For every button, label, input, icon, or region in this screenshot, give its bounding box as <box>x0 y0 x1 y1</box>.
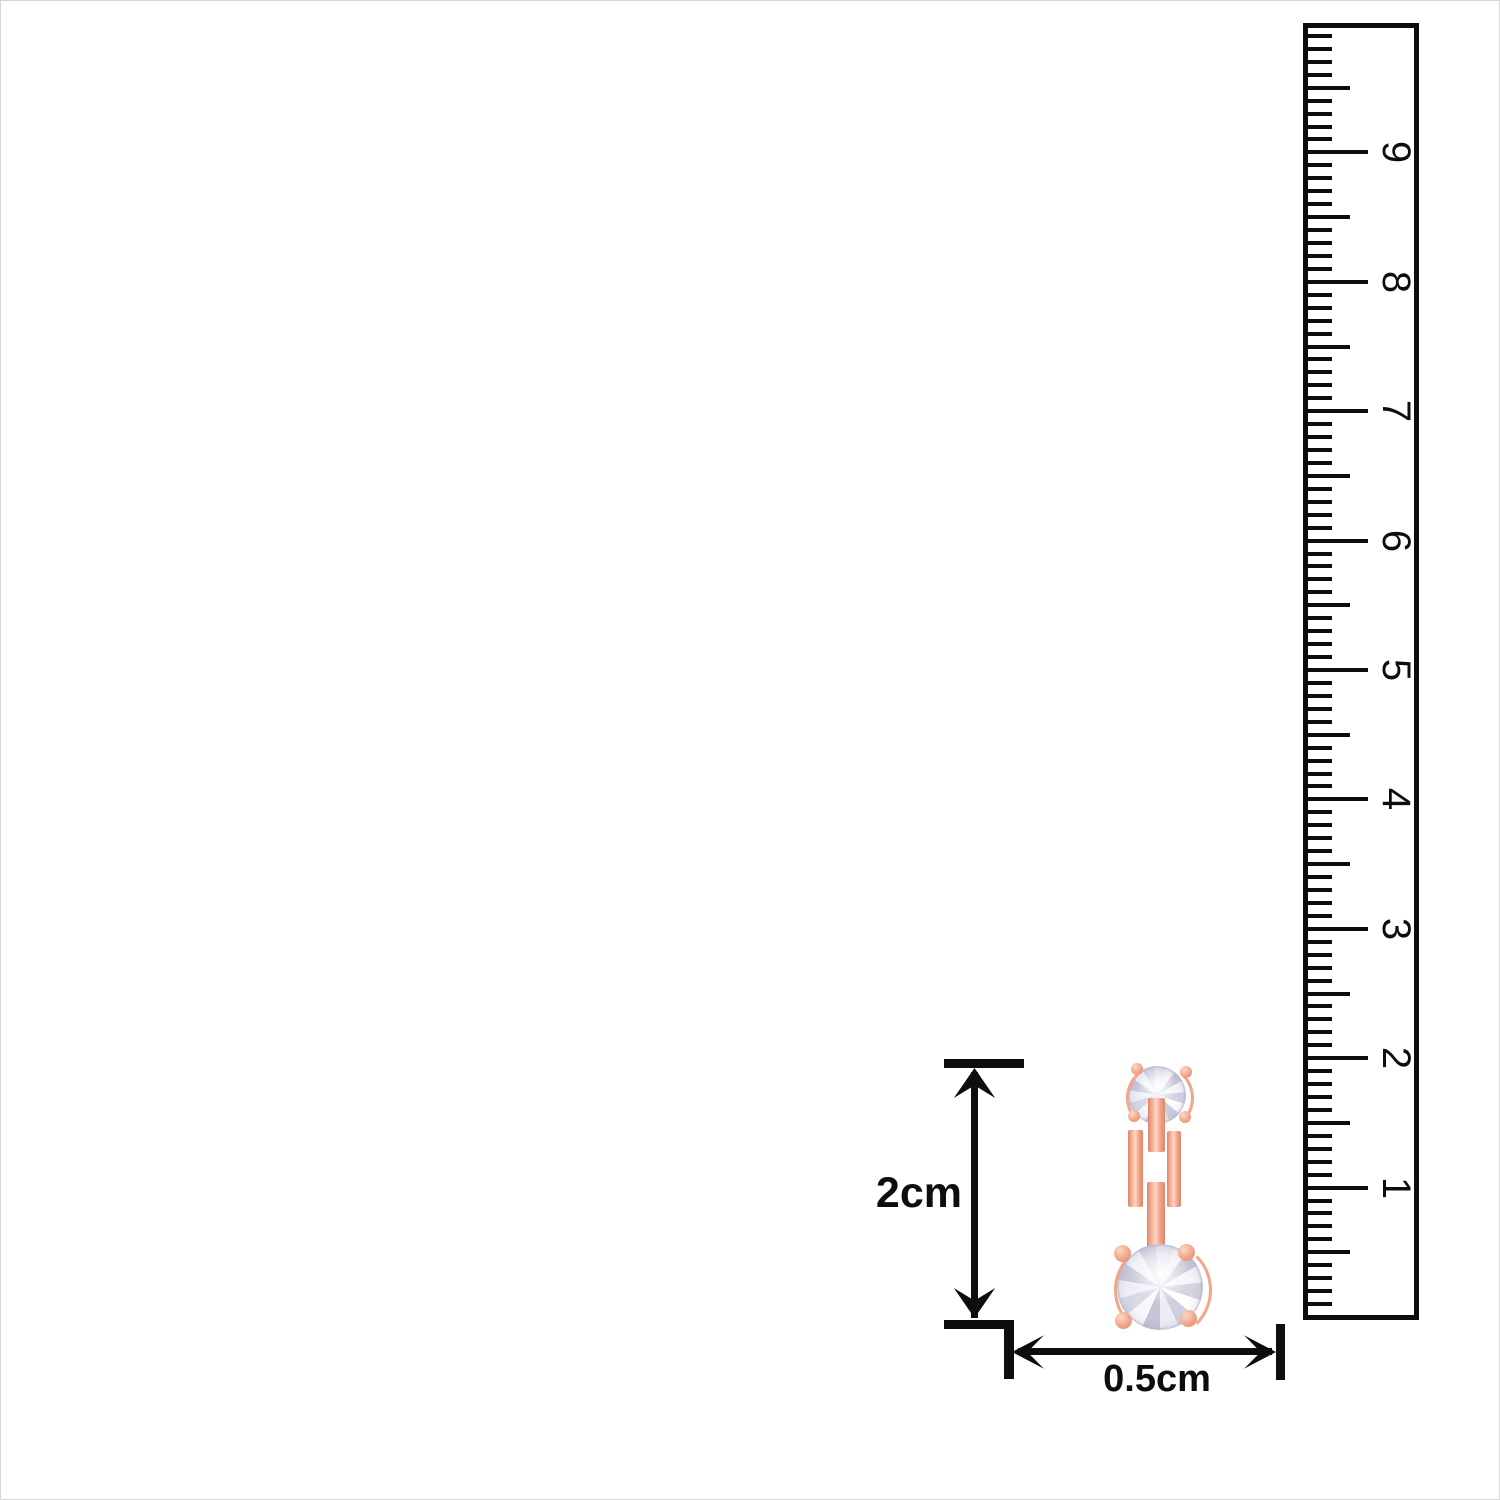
ruler-tick <box>1308 862 1350 866</box>
ruler-tick <box>1308 966 1332 970</box>
ruler-tick <box>1308 668 1368 672</box>
ruler-number: 6 <box>1376 529 1416 551</box>
ruler-tick <box>1308 577 1332 581</box>
ruler-tick <box>1308 810 1332 814</box>
ruler-tick <box>1308 1121 1350 1125</box>
prong-ball <box>1114 1245 1131 1262</box>
ruler-tick <box>1308 409 1368 413</box>
ruler-tick <box>1308 914 1332 918</box>
ruler-tick <box>1308 784 1332 788</box>
ruler-tick <box>1308 552 1332 556</box>
ruler-tick <box>1308 733 1350 737</box>
ruler-number: 9 <box>1376 141 1416 163</box>
ruler-tick <box>1308 448 1332 452</box>
prong-ball <box>1131 1063 1143 1075</box>
ruler-tick <box>1308 1043 1332 1047</box>
ruler-tick <box>1308 435 1332 439</box>
ruler-tick <box>1308 564 1332 568</box>
ruler-tick <box>1308 849 1332 853</box>
prong-ball <box>1178 1244 1195 1261</box>
ruler-tick <box>1308 150 1368 154</box>
ruler-tick <box>1308 720 1332 724</box>
ruler-number: 5 <box>1376 659 1416 681</box>
ruler-tick <box>1308 694 1332 698</box>
ruler-tick <box>1308 759 1332 763</box>
prong-ball <box>1180 1310 1197 1327</box>
ruler-tick <box>1308 357 1332 361</box>
width-dimension-line <box>1018 1348 1272 1355</box>
ruler-tick <box>1308 1095 1332 1099</box>
ruler-tick <box>1308 526 1332 530</box>
ruler-tick <box>1308 797 1368 801</box>
ruler-tick <box>1308 47 1332 51</box>
ruler-tick <box>1308 1082 1332 1086</box>
prong-ball <box>1179 1111 1191 1123</box>
ruler-tick <box>1308 707 1332 711</box>
ruler-tick <box>1308 396 1332 400</box>
ruler-tick <box>1308 772 1332 776</box>
ruler-tick <box>1308 215 1350 219</box>
ruler-tick <box>1308 1250 1350 1254</box>
ruler-tick <box>1308 642 1332 646</box>
ruler-tick <box>1308 293 1332 297</box>
product-size-diagram: 123456789 2cm <box>0 0 1500 1500</box>
ruler-tick <box>1308 1004 1332 1008</box>
ruler-tick <box>1308 1199 1332 1203</box>
ruler-number: 1 <box>1376 1176 1416 1198</box>
ruler-tick <box>1308 137 1332 141</box>
ruler-tick <box>1308 370 1332 374</box>
ruler-tick <box>1308 228 1332 232</box>
ruler-tick <box>1308 254 1332 258</box>
ruler-tick <box>1308 1276 1332 1280</box>
ruler-tick <box>1308 979 1332 983</box>
ruler-tick <box>1308 681 1332 685</box>
prong-ball <box>1180 1066 1192 1078</box>
ruler-tick <box>1308 202 1332 206</box>
ruler-tick <box>1308 86 1350 90</box>
ruler-tick <box>1308 1147 1332 1151</box>
ruler-tick <box>1308 280 1368 284</box>
ruler-tick <box>1308 1160 1332 1164</box>
ruler-tick <box>1308 539 1368 543</box>
ruler-tick <box>1308 655 1332 659</box>
width-dimension-label: 0.5cm <box>1098 1360 1216 1398</box>
ruler-tick <box>1308 176 1332 180</box>
ruler-tick <box>1308 953 1332 957</box>
ruler-tick <box>1308 1302 1332 1306</box>
prong-ball <box>1115 1312 1132 1329</box>
ruler-tick <box>1308 629 1332 633</box>
ruler-tick <box>1308 241 1332 245</box>
ruler-tick <box>1308 1186 1368 1190</box>
ruler-tick <box>1308 616 1332 620</box>
ruler-tick <box>1308 1173 1332 1177</box>
ruler-number: 4 <box>1376 788 1416 810</box>
ruler-tick <box>1308 1224 1332 1228</box>
ruler-tick <box>1308 901 1332 905</box>
ruler-tick <box>1308 500 1332 504</box>
ruler-tick <box>1308 927 1368 931</box>
extent-corner-bar <box>1004 1322 1014 1379</box>
ruler-tick <box>1308 1108 1332 1112</box>
ruler-tick <box>1308 875 1332 879</box>
ruler-tick <box>1308 513 1332 517</box>
ruler-tick <box>1308 422 1332 426</box>
prong-ball <box>1128 1110 1140 1122</box>
ruler-tick <box>1308 590 1332 594</box>
ruler-tick <box>1308 99 1332 103</box>
ruler-tick <box>1308 1237 1332 1241</box>
ruler-tick <box>1308 34 1332 38</box>
ruler-tick <box>1308 603 1350 607</box>
ruler-number: 3 <box>1376 918 1416 940</box>
ruler-tick <box>1308 823 1332 827</box>
ruler-tick <box>1308 940 1332 944</box>
ruler-tick <box>1308 836 1332 840</box>
ruler-tick <box>1308 1069 1332 1073</box>
ruler-tick <box>1308 60 1332 64</box>
chain-link-left-bar <box>1128 1130 1143 1207</box>
ruler-tick <box>1308 332 1332 336</box>
ruler-tick <box>1308 1030 1332 1034</box>
ruler-tick <box>1308 112 1332 116</box>
height-extent-cap-top <box>944 1059 1024 1068</box>
ruler-tick <box>1308 163 1332 167</box>
ruler-tick <box>1308 992 1350 996</box>
height-dimension-line <box>971 1072 978 1318</box>
ruler-number: 8 <box>1376 271 1416 293</box>
ruler-tick <box>1308 888 1332 892</box>
ruler-tick <box>1308 1134 1332 1138</box>
ruler-tick <box>1308 267 1332 271</box>
ruler-tick <box>1308 306 1332 310</box>
ruler-tick <box>1308 1211 1332 1215</box>
top-connector-bar <box>1148 1098 1165 1152</box>
width-extent-cap-right <box>1276 1324 1285 1380</box>
ruler-tick <box>1308 1056 1368 1060</box>
ruler-tick <box>1308 189 1332 193</box>
ruler-tick <box>1308 73 1332 77</box>
ruler-tick <box>1308 461 1332 465</box>
ruler-tick <box>1308 319 1332 323</box>
ruler-tick <box>1308 125 1332 129</box>
ruler-tick <box>1308 1017 1332 1021</box>
ruler-tick <box>1308 345 1350 349</box>
ruler-tick <box>1308 383 1332 387</box>
ruler-number: 2 <box>1376 1047 1416 1069</box>
ruler-tick <box>1308 474 1350 478</box>
chain-link-right-bar <box>1167 1131 1181 1207</box>
ruler-tick <box>1308 1263 1332 1267</box>
ruler-tick <box>1308 487 1332 491</box>
height-dimension-label: 2cm <box>868 1172 962 1215</box>
ruler-tick <box>1308 746 1332 750</box>
ruler-tick <box>1308 1289 1332 1293</box>
ruler-number: 7 <box>1376 400 1416 422</box>
